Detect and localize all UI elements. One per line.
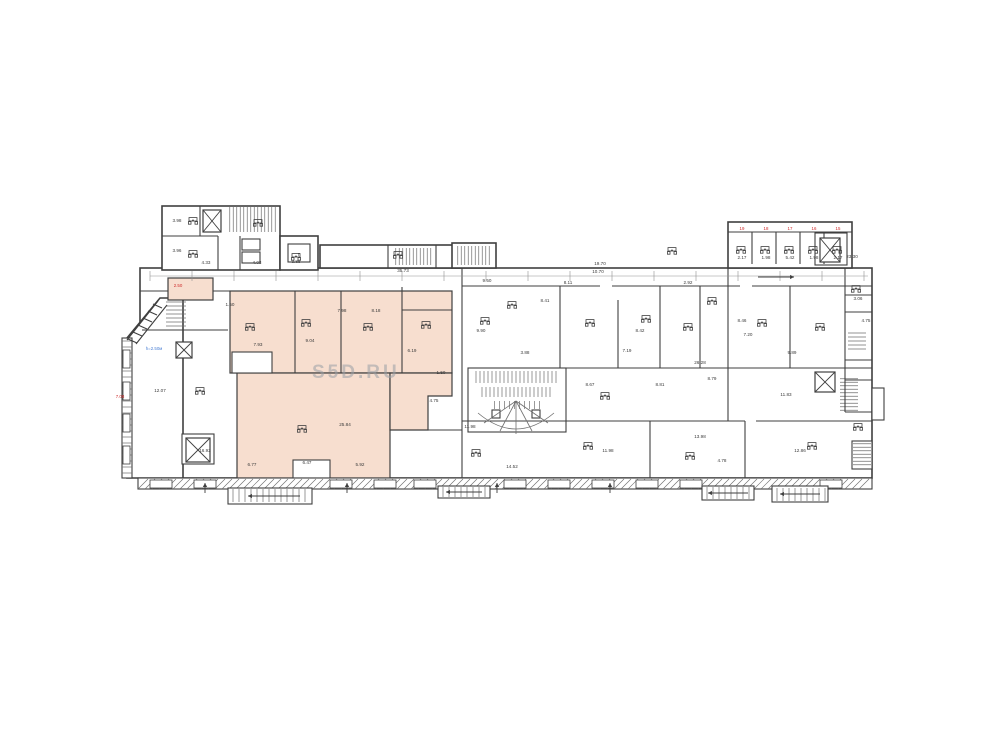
svg-text:9.04: 9.04 xyxy=(306,338,315,343)
svg-text:11.83: 11.83 xyxy=(780,392,792,397)
svg-text:2.17: 2.17 xyxy=(834,255,843,260)
svg-text:2.17: 2.17 xyxy=(738,255,747,260)
svg-text:4.75: 4.75 xyxy=(862,318,871,323)
svg-text:1.50: 1.50 xyxy=(226,302,235,307)
svg-text:7.08: 7.08 xyxy=(116,394,125,399)
svg-text:1.98: 1.98 xyxy=(810,255,819,260)
svg-text:7.19: 7.19 xyxy=(623,348,632,353)
svg-text:11.98: 11.98 xyxy=(464,424,476,429)
svg-text:16.92: 16.92 xyxy=(199,448,211,453)
svg-text:6.47: 6.47 xyxy=(303,460,312,465)
svg-text:18: 18 xyxy=(764,226,769,231)
svg-text:35.73: 35.73 xyxy=(397,268,409,273)
svg-text:3.88: 3.88 xyxy=(292,259,301,264)
svg-text:7.98: 7.98 xyxy=(338,308,347,313)
svg-text:6.77: 6.77 xyxy=(248,462,257,467)
svg-text:12.07: 12.07 xyxy=(154,388,166,393)
svg-text:25.84: 25.84 xyxy=(339,422,351,427)
watermark-text: S5D.RU xyxy=(312,362,400,384)
svg-text:3.06: 3.06 xyxy=(854,296,863,301)
svg-text:23.30: 23.30 xyxy=(846,254,858,259)
svg-text:10.70: 10.70 xyxy=(592,269,604,274)
svg-text:11.98: 11.98 xyxy=(602,448,614,453)
svg-text:17: 17 xyxy=(788,226,793,231)
svg-text:2.92: 2.92 xyxy=(684,280,693,285)
svg-text:8.41: 8.41 xyxy=(541,298,550,303)
svg-text:8.79: 8.79 xyxy=(708,376,717,381)
svg-text:2.50: 2.50 xyxy=(174,283,183,288)
svg-text:4.03: 4.03 xyxy=(253,260,262,265)
svg-text:14.52: 14.52 xyxy=(506,464,518,469)
svg-text:6.19: 6.19 xyxy=(408,348,417,353)
svg-text:5.42: 5.42 xyxy=(786,255,795,260)
svg-text:9.90: 9.90 xyxy=(477,328,486,333)
svg-text:19: 19 xyxy=(740,226,745,231)
svg-text:8.67: 8.67 xyxy=(586,382,595,387)
svg-text:5.92: 5.92 xyxy=(356,462,365,467)
svg-text:8.11: 8.11 xyxy=(564,280,573,285)
svg-text:3.98: 3.98 xyxy=(173,218,182,223)
svg-text:3.88: 3.88 xyxy=(521,350,530,355)
svg-text:15: 15 xyxy=(836,226,841,231)
svg-text:8.18: 8.18 xyxy=(372,308,381,313)
svg-text:8.81: 8.81 xyxy=(656,382,665,387)
svg-text:16: 16 xyxy=(812,226,817,231)
svg-text:1.98: 1.98 xyxy=(762,255,771,260)
svg-text:7.93: 7.93 xyxy=(254,342,263,347)
floor-plan-page: 3.983.964.334.033.8835.7319.7010.7023.30… xyxy=(0,0,1000,750)
svg-text:12.86: 12.86 xyxy=(794,448,806,453)
svg-text:19.70: 19.70 xyxy=(594,261,606,266)
svg-text:9.50: 9.50 xyxy=(483,278,492,283)
svg-text:8.46: 8.46 xyxy=(738,318,747,323)
svg-text:3.96: 3.96 xyxy=(173,248,182,253)
floor-plan-drawing: 3.983.964.334.033.8835.7319.7010.7023.30… xyxy=(0,0,1000,750)
svg-text:4.78: 4.78 xyxy=(718,458,727,463)
svg-text:13.98: 13.98 xyxy=(694,434,706,439)
svg-text:h=2.50м: h=2.50м xyxy=(146,346,163,351)
svg-text:8.42: 8.42 xyxy=(636,328,645,333)
svg-text:4.33: 4.33 xyxy=(202,260,211,265)
svg-text:7.20: 7.20 xyxy=(744,332,753,337)
floor-plan-canvas: 3.983.964.334.033.8835.7319.7010.7023.30… xyxy=(0,0,1000,750)
svg-text:26.28: 26.28 xyxy=(694,360,706,365)
svg-text:1.50: 1.50 xyxy=(437,370,446,375)
svg-text:4.75: 4.75 xyxy=(430,398,439,403)
svg-text:9.89: 9.89 xyxy=(788,350,797,355)
